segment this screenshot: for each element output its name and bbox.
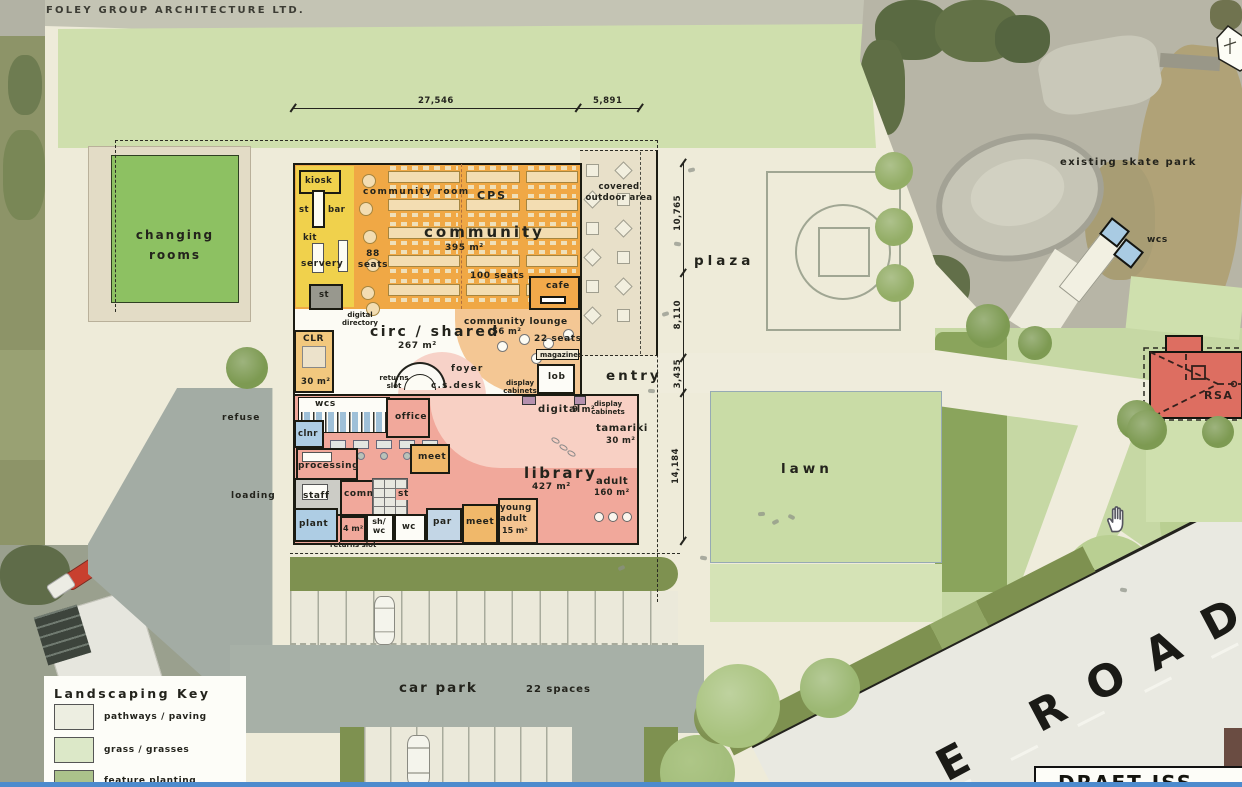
library-area-label: 427 m²: [532, 482, 571, 493]
tree-icon: [966, 304, 1010, 348]
seats-100-label: 100 seats: [470, 271, 525, 282]
dim-27546: 27,546: [418, 96, 454, 106]
young-adult-label: young adult: [500, 503, 536, 524]
processing-label: processing: [298, 461, 359, 472]
site-plan-canvas[interactable]: E ROAD RSA 27,546 5,891 10,765 8,110 3,4…: [0, 0, 1242, 787]
spaces-label: 22 spaces: [526, 684, 591, 697]
dim-tick: [680, 536, 687, 545]
outdoor-table-icon: [617, 309, 630, 322]
firm-title: FOLEY GROUP ARCHITECTURE LTD.: [46, 5, 305, 18]
plant-label: plant: [299, 519, 328, 530]
meet-lower-label: meet: [466, 517, 494, 528]
dim-8110: 8,110: [673, 300, 683, 329]
hand-cursor-icon: [1102, 503, 1132, 535]
changing-rooms-label: changing rooms: [120, 225, 230, 266]
dim-14184: 14,184: [671, 448, 681, 484]
outdoor-table-icon: [617, 251, 630, 264]
dim-line-right: [683, 163, 684, 541]
dim-10765: 10,765: [673, 195, 683, 231]
tree-icon: [226, 347, 268, 389]
staff-label: staff: [303, 491, 330, 502]
outdoor-table-icon: [586, 280, 599, 293]
returns-slot-label: returns slot: [378, 374, 410, 390]
office-label: office: [395, 412, 427, 423]
adult-label: adult: [596, 476, 628, 489]
lounge-area-label: 56 m²: [492, 327, 521, 338]
lawn-lower-band: [710, 564, 942, 622]
outdoor-table-icon: [586, 164, 599, 177]
legend-title: Landscaping Key: [54, 686, 211, 702]
community-label: community: [424, 223, 545, 242]
dim-5891: 5,891: [593, 96, 622, 106]
display-cabinet: [522, 396, 536, 405]
bar-label: bar: [328, 205, 345, 216]
st-lower-label: st: [319, 290, 329, 301]
rsa-building: [1142, 326, 1242, 422]
shrub-mark: [688, 167, 696, 173]
lounge-seats-label: 22 seats: [534, 334, 582, 345]
legend-label-paving: pathways / paving: [104, 712, 207, 723]
legend-swatch-paving: [54, 704, 94, 730]
tamariki-label: tamariki: [596, 423, 648, 436]
legend-swatch-grass: [54, 737, 94, 763]
par-label: par: [433, 517, 452, 528]
magazines-label: magazines: [540, 351, 582, 359]
shwc-label: sh/ wc: [368, 517, 390, 535]
adult-area-label: 160 m²: [594, 488, 630, 499]
clr-table: [302, 346, 326, 368]
tree-icon: [875, 208, 913, 246]
young-adult-area-label: 15 m²: [502, 526, 528, 535]
wc-label: wc: [402, 522, 416, 533]
library-label: library: [524, 464, 597, 483]
grass-band-top: [58, 24, 876, 148]
clnr-label: clnr: [298, 429, 318, 440]
wcs-label: wcs: [315, 399, 336, 410]
lobby-label: lob: [548, 372, 566, 383]
clr-label: CLR: [303, 334, 324, 345]
plaza-label: plaza: [694, 253, 754, 270]
carpark-stalls-north: [290, 591, 678, 645]
seats-88-label: 88 seats: [356, 249, 390, 272]
refuse-label: refuse: [222, 413, 260, 424]
entry-label: entry: [606, 368, 662, 385]
kiosk-label: kiosk: [305, 176, 332, 187]
display-cabinets-label: display cabinets: [502, 379, 538, 395]
dim-3435: 3,435: [673, 359, 683, 388]
tree-icon: [875, 152, 913, 190]
carpark-planting-sw: [340, 727, 364, 787]
parked-car: [374, 596, 395, 645]
landscaping-key: Landscaping Key pathways / paving grass …: [44, 676, 246, 787]
rsa-label: RSA: [1204, 389, 1233, 403]
parked-car: [407, 735, 430, 787]
display-cabinets-label-2: display cabinets: [590, 400, 626, 416]
dim-line-top: [293, 108, 640, 109]
tree-icon: [1127, 410, 1167, 450]
returns-slot-bottom-label: returns slot: [330, 541, 376, 549]
north-arrow-icon: [1216, 24, 1242, 74]
site-boundary: [290, 553, 680, 554]
tree-icon: [1202, 416, 1234, 448]
st-upper-label: st: [299, 205, 309, 216]
bar-counter: [312, 190, 325, 228]
tree-icon: [800, 658, 860, 718]
carpark-stalls-south: [364, 727, 572, 787]
shrub-mark: [674, 242, 681, 247]
window-edge-bar: [0, 782, 1242, 787]
covered-outdoor-label: covered outdoor area: [582, 182, 656, 203]
path-entry-east: [655, 353, 945, 393]
lawn-label: lawn: [781, 461, 833, 478]
cafe-counter: [540, 296, 566, 304]
cs-desk-label: c.s.desk: [431, 381, 482, 392]
servery-label: servery: [301, 259, 343, 270]
legend-label-grass: grass / grasses: [104, 745, 189, 756]
tree-icon: [1018, 326, 1052, 360]
wcs-external-label: wcs: [1147, 235, 1168, 246]
shrub-mark: [662, 311, 670, 317]
shrub-mark: [700, 555, 708, 560]
st-label: st: [396, 489, 411, 500]
meet-upper-label: meet: [418, 452, 446, 463]
community-room-label: community room: [363, 187, 470, 198]
car-park-label: car park: [399, 680, 478, 697]
clr-area-label: 30 m²: [301, 377, 330, 388]
skate-park-label: existing skate park: [1060, 157, 1197, 170]
cafe-label: cafe: [546, 281, 570, 292]
tree-icon: [696, 664, 780, 748]
circ-area-label: 267 m²: [398, 341, 437, 352]
loading-label: loading: [231, 491, 276, 502]
community-area-label: 395 m²: [445, 243, 484, 254]
shrub-mark: [758, 512, 765, 516]
foyer-label: foyer: [451, 364, 484, 375]
site-boundary: [115, 140, 658, 141]
outdoor-table-icon: [586, 222, 599, 235]
site-boundary: [115, 140, 116, 312]
carpark-planting-strip: [290, 557, 678, 591]
tamariki-area-label: 30 m²: [606, 436, 635, 447]
court-key: [818, 227, 870, 277]
shrub-mark: [648, 389, 655, 394]
tree-icon: [876, 264, 914, 302]
carpark-gray-south: [572, 727, 644, 787]
plant-area-label: 4 m²: [343, 524, 363, 533]
cps-label: CPS: [477, 189, 507, 203]
